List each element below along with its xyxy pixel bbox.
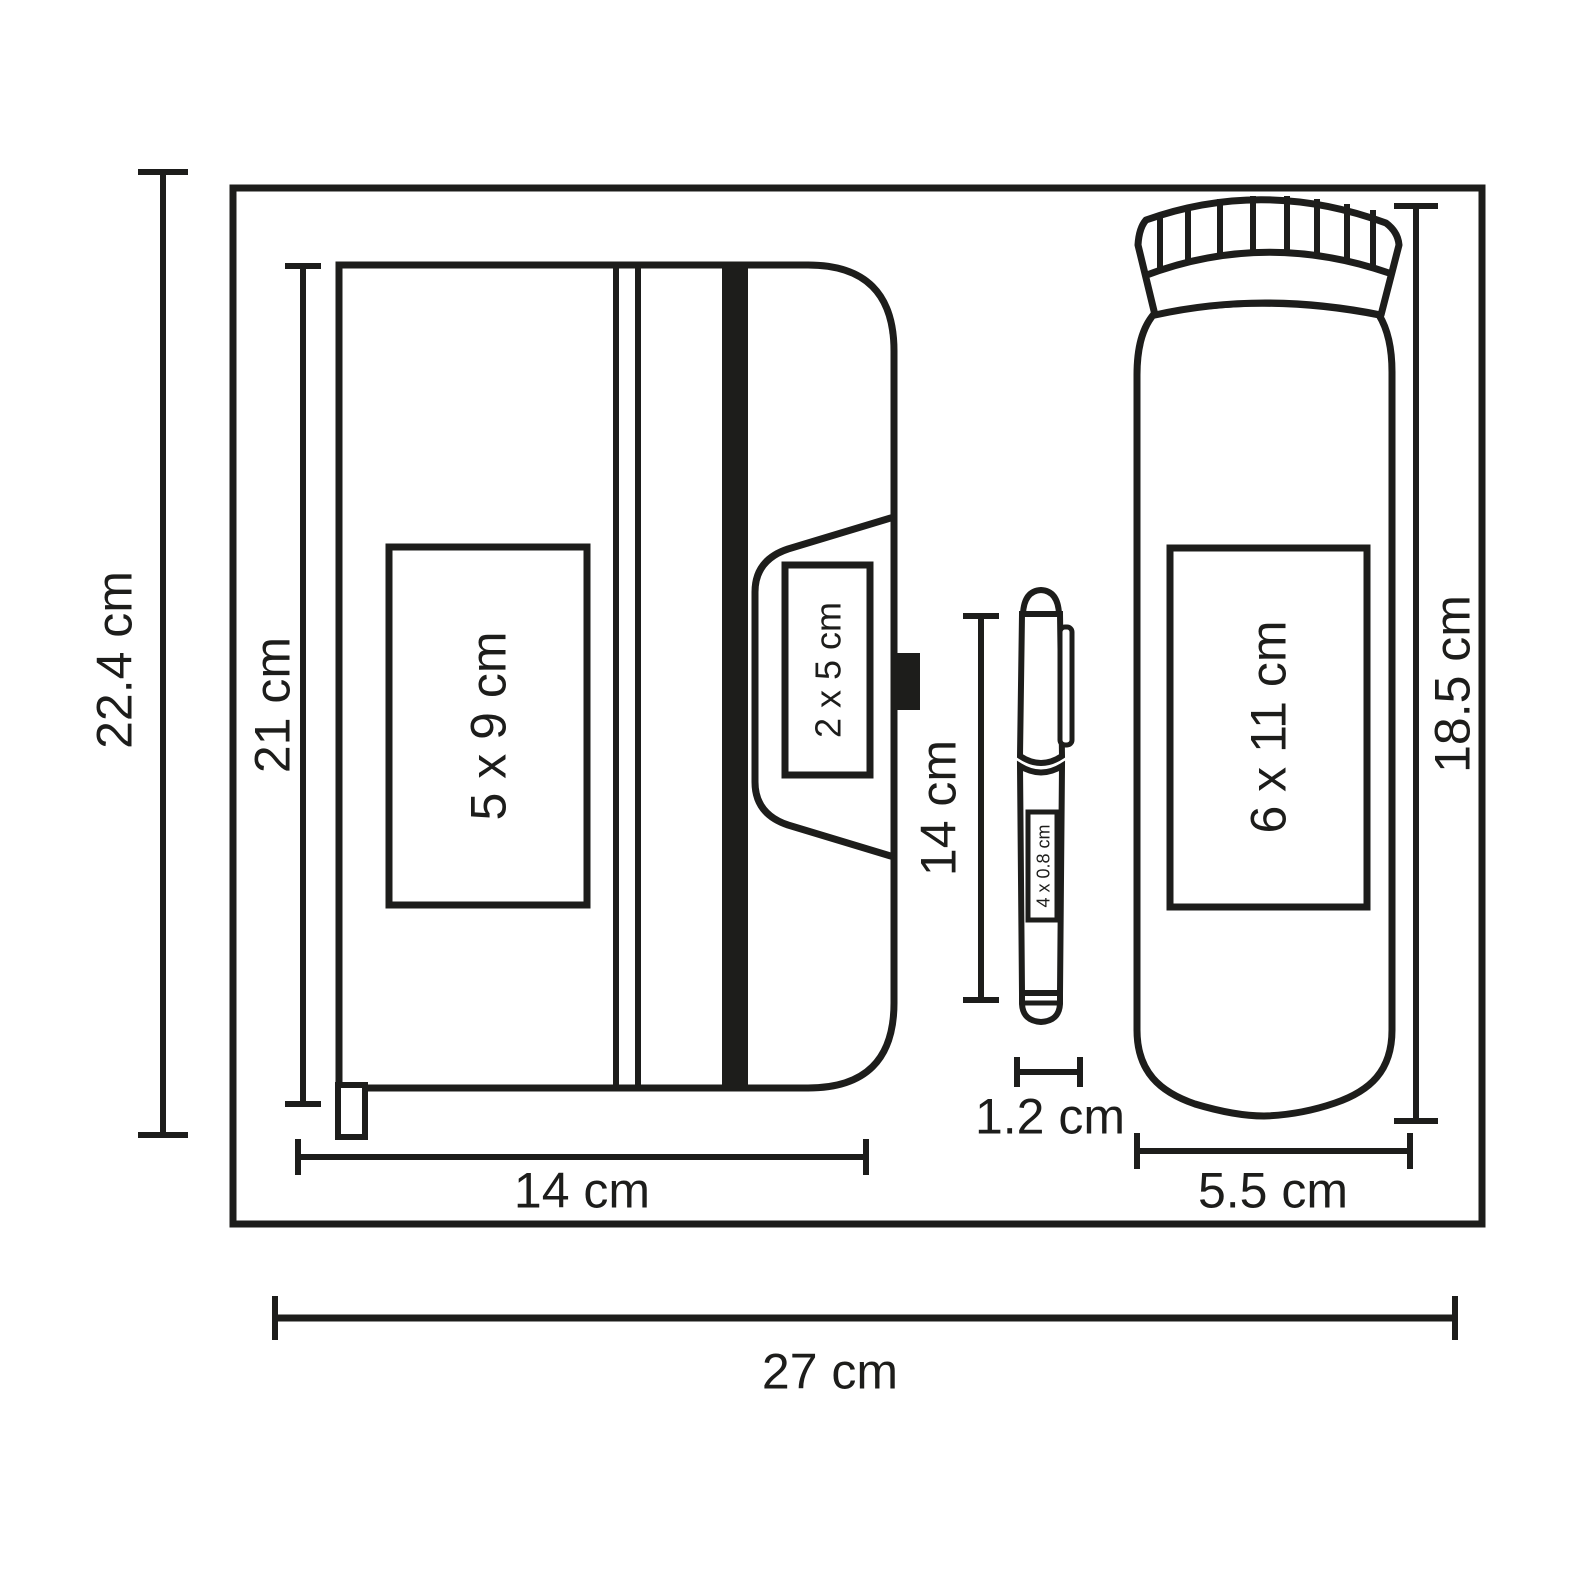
bottle: 6 x 11 cm: [1137, 196, 1399, 1116]
notebook-print-area-label: 5 x 9 cm: [461, 632, 517, 821]
outer-height-label: 22.4 cm: [87, 571, 143, 749]
bottle-height-label: 18.5 cm: [1425, 595, 1481, 773]
pen-clip: [1060, 627, 1072, 745]
notebook-height-label: 21 cm: [245, 637, 301, 773]
pen-print-area-label: 4 x 0.8 cm: [1033, 824, 1053, 907]
pen-length-label: 14 cm: [911, 740, 967, 876]
bottle-cap: [1138, 200, 1399, 315]
outer-width-label: 27 cm: [762, 1344, 898, 1400]
flap-print-area-label: 2 x 5 cm: [808, 602, 849, 738]
notebook-clasp: [892, 653, 920, 710]
bottle-print-area-label: 6 x 11 cm: [1241, 620, 1297, 833]
pen-end-cap: [1022, 993, 1060, 1022]
notebook-elastic-band: [722, 265, 748, 1088]
diagram-canvas: 5 x 9 cm 2 x 5 cm 6 x 11 cm 4 x 0.8 c: [0, 0, 1575, 1575]
pen-cap-top: [1023, 590, 1059, 614]
notebook-width-label: 14 cm: [514, 1163, 650, 1219]
pen-cap: [1020, 614, 1062, 763]
pen-diameter-label: 1.2 cm: [975, 1089, 1125, 1145]
notebook-bookmark: [338, 1085, 365, 1137]
notebook: 5 x 9 cm 2 x 5 cm: [338, 265, 920, 1137]
dimension-diagram: 5 x 9 cm 2 x 5 cm 6 x 11 cm 4 x 0.8 c: [0, 0, 1575, 1575]
bottle-width-label: 5.5 cm: [1198, 1163, 1348, 1219]
